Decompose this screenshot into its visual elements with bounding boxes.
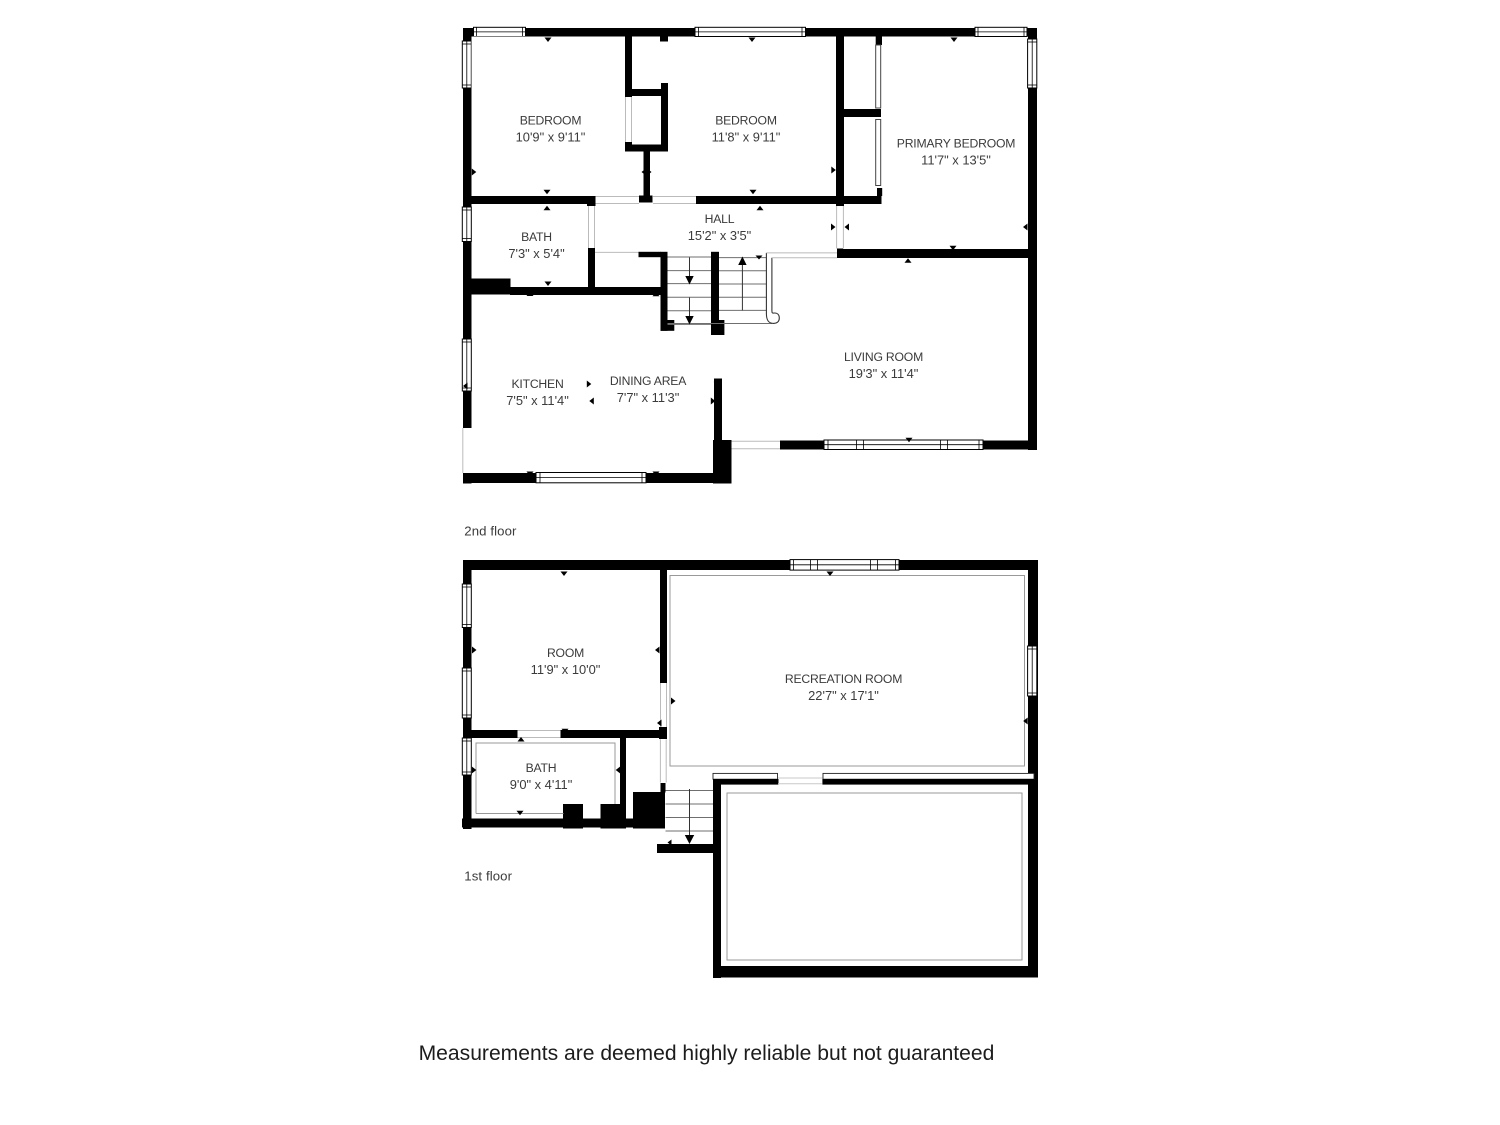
svg-text:7'5" x 11'4": 7'5" x 11'4" — [506, 393, 569, 408]
svg-text:RECREATION ROOM: RECREATION ROOM — [785, 672, 902, 686]
svg-text:19'3" x 11'4": 19'3" x 11'4" — [849, 366, 919, 381]
svg-text:BEDROOM: BEDROOM — [715, 114, 777, 128]
svg-text:HALL: HALL — [705, 212, 735, 226]
svg-text:ROOM: ROOM — [547, 646, 584, 660]
svg-text:1st floor: 1st floor — [464, 869, 512, 884]
svg-text:10'9" x 9'11": 10'9" x 9'11" — [516, 130, 586, 145]
svg-text:LIVING ROOM: LIVING ROOM — [844, 350, 923, 364]
svg-text:7'7" x 11'3": 7'7" x 11'3" — [617, 390, 680, 405]
svg-text:DINING AREA: DINING AREA — [610, 374, 687, 388]
svg-text:BATH: BATH — [526, 761, 557, 775]
svg-text:2nd floor: 2nd floor — [464, 524, 517, 539]
svg-text:11'7" x 13'5": 11'7" x 13'5" — [921, 153, 991, 168]
svg-text:Measurements are deemed highly: Measurements are deemed highly reliable … — [419, 1042, 995, 1065]
svg-text:7'3" x 5'4": 7'3" x 5'4" — [508, 246, 565, 261]
svg-text:11'8" x 9'11": 11'8" x 9'11" — [712, 130, 781, 145]
svg-text:11'9" x 10'0": 11'9" x 10'0" — [531, 662, 601, 677]
svg-text:BEDROOM: BEDROOM — [520, 114, 582, 128]
svg-text:9'0" x 4'11": 9'0" x 4'11" — [510, 777, 573, 792]
svg-text:KITCHEN: KITCHEN — [511, 377, 563, 391]
svg-text:22'7" x 17'1": 22'7" x 17'1" — [808, 688, 879, 703]
svg-text:15'2" x 3'5": 15'2" x 3'5" — [688, 228, 752, 243]
svg-text:PRIMARY BEDROOM: PRIMARY BEDROOM — [897, 137, 1015, 151]
svg-text:BATH: BATH — [521, 230, 552, 244]
